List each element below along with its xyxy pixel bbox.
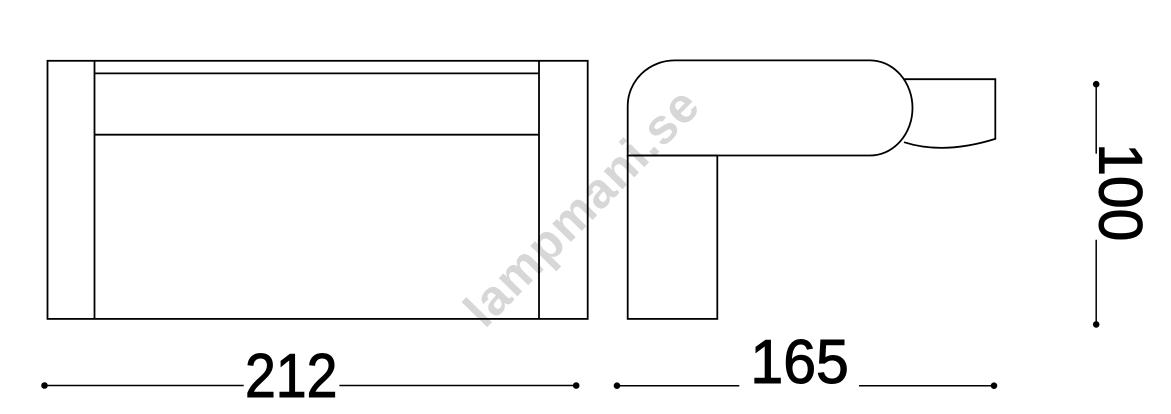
svg-text:212: 212 — [245, 342, 337, 411]
svg-text:165: 165 — [750, 327, 848, 397]
svg-text:lampmani.se: lampmani.se — [453, 77, 710, 337]
svg-text:100: 100 — [1086, 143, 1154, 241]
